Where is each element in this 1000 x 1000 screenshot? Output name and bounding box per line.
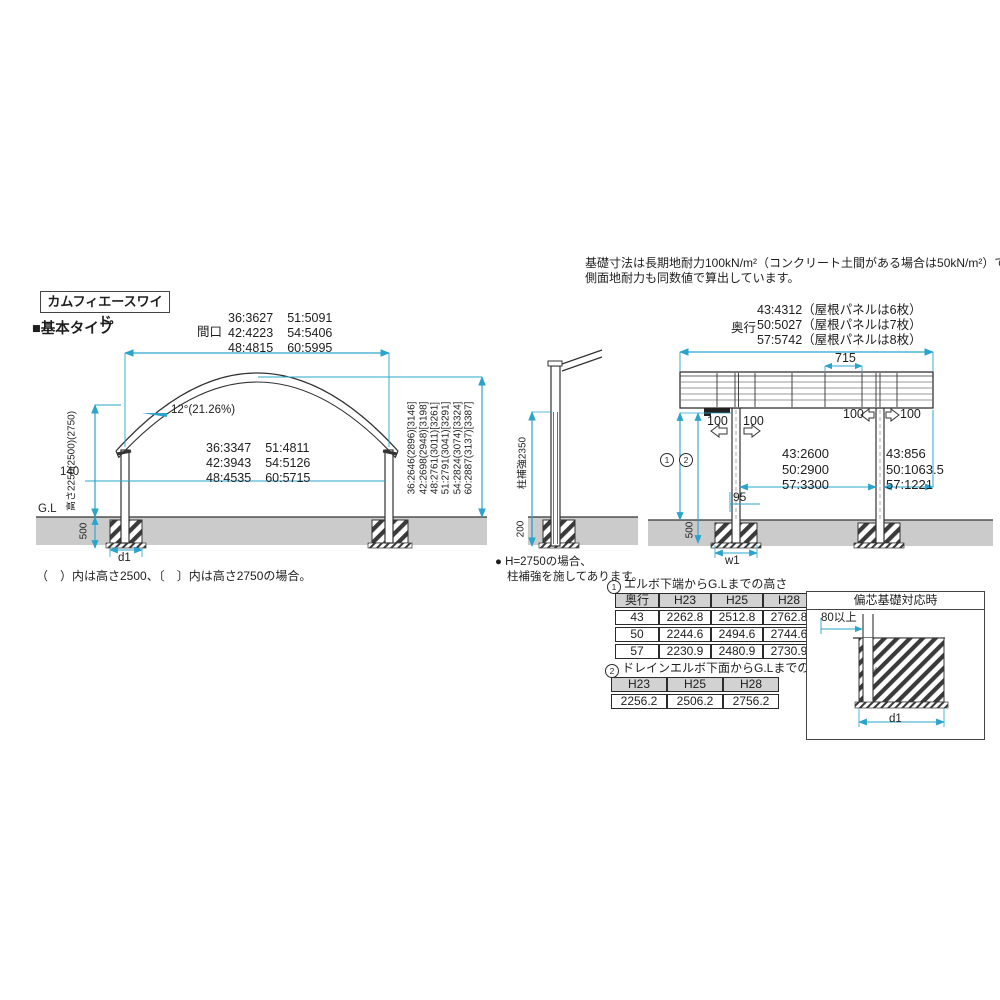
eave-height-values: 36:334751:4811 42:394354:5126 48:453560:…	[206, 441, 310, 486]
cell: 2756.2	[723, 694, 779, 709]
dim-100-label: 100	[743, 414, 764, 429]
dim-d1-label: d1	[889, 713, 902, 726]
drain-elbow-height-table: H23 H25 H28 2256.2 2506.2 2756.2	[611, 675, 779, 711]
col-header: 奥行	[615, 593, 659, 608]
depth-value: 50:5027（屋根パネルは7枚）	[757, 318, 922, 333]
eccentric-box-title: 偏芯基礎対応時	[807, 592, 984, 610]
dim-95-label: 95	[733, 490, 746, 504]
overhang-value: 57:1221	[886, 477, 944, 493]
total-height-line: 54:2824(3074)[3324]	[453, 402, 464, 495]
depth-dim-values: 43:4312（屋根パネルは6枚） 50:5027（屋根パネルは7枚） 57:5…	[757, 303, 922, 348]
cell: 2262.8	[659, 610, 711, 625]
roof-arc-outer	[116, 373, 398, 451]
dim-d1-label: d1	[118, 552, 131, 565]
cell: 57	[615, 644, 659, 659]
dim-100-label: 100	[843, 407, 864, 422]
product-name-box: カムフィエースワイド	[40, 291, 170, 313]
dim-80-label: 80以上	[821, 612, 857, 625]
table1-title-text: エルボ下端からG.Lまでの高さ	[624, 577, 787, 591]
col-header: H23	[659, 593, 711, 608]
cell: 50	[615, 627, 659, 642]
dim-500-label: 500	[79, 523, 90, 540]
dim-w1-label: w1	[725, 555, 740, 568]
eave-value: 60:5715	[265, 471, 310, 486]
overhang-values: 43:856 50:1063.5 57:1221	[886, 446, 944, 493]
table-row: 57 2230.9 2480.9 2730.9	[615, 644, 815, 659]
pillar-detail-drawing	[490, 350, 640, 580]
span-value: 43:2600	[782, 446, 829, 462]
cell: 2512.8	[711, 610, 763, 625]
catalog-page: カムフィエースワイド ■基本タイプ 基礎寸法は長期地耐力100kN/m²（コンク…	[0, 0, 1000, 1000]
pillar-column	[551, 366, 560, 546]
column-right	[385, 450, 393, 543]
overhang-value: 50:1063.5	[886, 462, 944, 478]
depth-value: 43:4312（屋根パネルは6枚）	[757, 303, 922, 318]
width-value: 51:5091	[287, 311, 332, 326]
depth-value: 57:5742（屋根パネルは8枚）	[757, 333, 922, 348]
width-value: 60:5995	[287, 341, 332, 356]
ground-band	[36, 517, 487, 545]
dim-500-label: 500	[685, 522, 696, 539]
width-value: 54:5406	[287, 326, 332, 341]
span-value: 50:2900	[782, 462, 829, 478]
table-row: 43 2262.8 2512.8 2762.8	[615, 610, 815, 625]
width-dim-prefix: 間口	[197, 325, 222, 340]
col-header: H28	[723, 677, 779, 692]
eccentric-foundation-box: 偏芯基礎対応時 80以上 d1	[806, 591, 985, 740]
overhang-value: 43:856	[886, 446, 944, 462]
table2-title-text: ドレインエルボ下面からG.Lまでの高さ	[622, 661, 833, 675]
cell: 2256.2	[611, 694, 667, 709]
column-left	[121, 450, 129, 543]
right-white-arrow-icon	[886, 409, 899, 421]
pillar-reinforce-label: 柱補強2350	[514, 437, 529, 489]
total-height-line: 42:2698(2948)[3198]	[419, 402, 430, 495]
total-height-line: 36:2646(2896)[3146]	[407, 402, 418, 495]
col-header: H25	[667, 677, 723, 692]
eave-value: 51:4811	[265, 441, 309, 456]
slope-triangle-icon	[142, 413, 167, 417]
circled-2-badge: 2	[679, 453, 693, 467]
roof-slab	[680, 372, 933, 408]
eave-value: 42:3943	[206, 456, 251, 471]
total-height-line: 48:2761(3011)[3261]	[430, 402, 441, 494]
eave-value: 36:3347	[206, 441, 251, 456]
table-row: 50 2244.6 2494.6 2744.6	[615, 627, 815, 642]
cell: 2506.2	[667, 694, 723, 709]
eave-value: 48:4535	[206, 471, 251, 486]
dim-200-label: 200	[516, 521, 527, 538]
slope-label: 12°(21.26%)	[171, 404, 235, 417]
dim-100-label: 100	[900, 407, 921, 422]
cell: 2244.6	[659, 627, 711, 642]
circled-1-badge: 1	[660, 453, 674, 467]
ground-level-label: G.L	[38, 503, 57, 516]
depth-dim-prefix: 奥行	[731, 321, 756, 336]
cell: 2494.6	[711, 627, 763, 642]
height-dim-label: 高さ2250(2500)(2750)	[63, 411, 78, 511]
dim-715-label: 715	[835, 351, 856, 366]
cell: 43	[615, 610, 659, 625]
pillar-note-line1: ● H=2750の場合、	[495, 556, 592, 569]
eave-value: 54:5126	[265, 456, 310, 471]
col-header: H25	[711, 593, 763, 608]
span-value: 57:3300	[782, 477, 829, 493]
width-value: 42:4223	[228, 326, 273, 341]
width-value: 36:3627	[228, 311, 273, 326]
dim-100-label: 100	[707, 414, 728, 429]
width-dim-values: 36:362751:5091 42:422354:5406 48:481560:…	[228, 311, 332, 356]
dim-140-label: 140	[60, 466, 79, 479]
cell: 2480.9	[711, 644, 763, 659]
height-caption: （ ）内は高さ2500、〔 〕内は高さ2750の場合。	[36, 569, 311, 583]
col-header: H23	[611, 677, 667, 692]
total-height-line: 51:2791(3041)[3291]	[441, 402, 452, 495]
foundation-note-line1: 基礎寸法は長期地耐力100kN/m²（コンクリート土間がある場合は50kN/m²…	[585, 256, 1000, 270]
table-row: 2256.2 2506.2 2756.2	[611, 694, 779, 709]
cell: 2230.9	[659, 644, 711, 659]
elbow-height-table: 奥行 H23 H25 H28 43 2262.8 2512.8 2762.8 5…	[615, 591, 815, 661]
foundation-note-line2: 側面地耐力も同数値で算出しています。	[585, 271, 799, 285]
column-span-values: 43:2600 50:2900 57:3300	[782, 446, 829, 493]
total-height-line: 60:2887(3137)[3387]	[464, 402, 475, 495]
width-value: 48:4815	[228, 341, 273, 356]
